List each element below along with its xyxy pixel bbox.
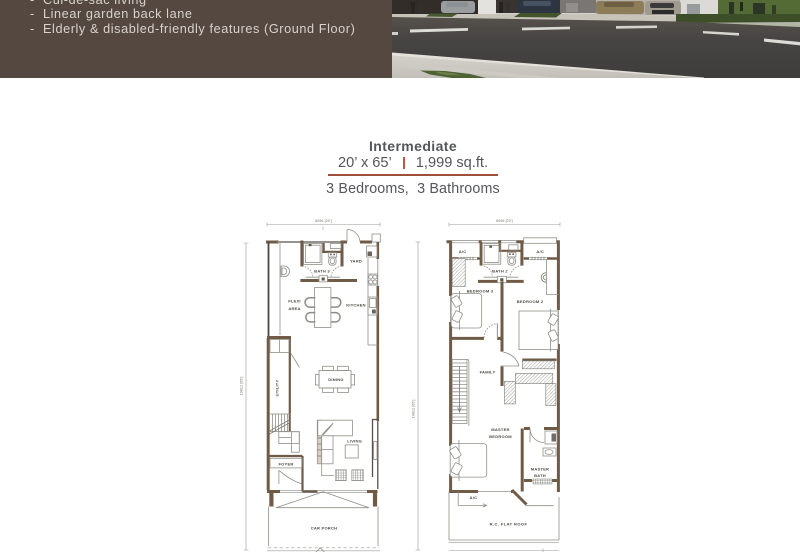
svg-text:A/C: A/C bbox=[536, 249, 544, 254]
svg-text:KITCHEN: KITCHEN bbox=[346, 303, 366, 308]
svg-text:MASTER: MASTER bbox=[491, 427, 509, 432]
svg-text:BATH: BATH bbox=[534, 473, 546, 478]
svg-text:19812 [65’]: 19812 [65’] bbox=[240, 377, 244, 396]
svg-text:R.C. FLAT ROOF: R.C. FLAT ROOF bbox=[490, 522, 528, 527]
svg-text:FAMILY: FAMILY bbox=[480, 370, 496, 375]
svg-text:DINING: DINING bbox=[328, 377, 343, 382]
svg-text:LIVING: LIVING bbox=[347, 438, 362, 443]
svg-text:6096 [20’]: 6096 [20’] bbox=[496, 219, 513, 223]
svg-text:BATH 2: BATH 2 bbox=[492, 269, 508, 274]
svg-text:BEDROOM: BEDROOM bbox=[489, 434, 512, 439]
svg-text:A/C: A/C bbox=[459, 249, 467, 254]
svg-text:A/C: A/C bbox=[470, 495, 478, 500]
svg-text:19812 [65’]: 19812 [65’] bbox=[412, 400, 416, 419]
svg-text:FLEXI: FLEXI bbox=[288, 299, 301, 304]
svg-text:AREA: AREA bbox=[288, 306, 300, 311]
svg-text:BEDROOM 2: BEDROOM 2 bbox=[517, 299, 544, 304]
svg-text:MASTER: MASTER bbox=[531, 467, 549, 472]
svg-text:BATH 3: BATH 3 bbox=[314, 268, 330, 273]
svg-text:YARD: YARD bbox=[350, 259, 362, 264]
svg-text:FOYER: FOYER bbox=[278, 461, 293, 466]
svg-text:UTILITY: UTILITY bbox=[275, 380, 280, 397]
svg-text:BEDROOM 3: BEDROOM 3 bbox=[467, 289, 494, 294]
svg-text:6096 [20’]: 6096 [20’] bbox=[315, 219, 332, 223]
svg-text:CAR PORCH: CAR PORCH bbox=[311, 526, 338, 531]
